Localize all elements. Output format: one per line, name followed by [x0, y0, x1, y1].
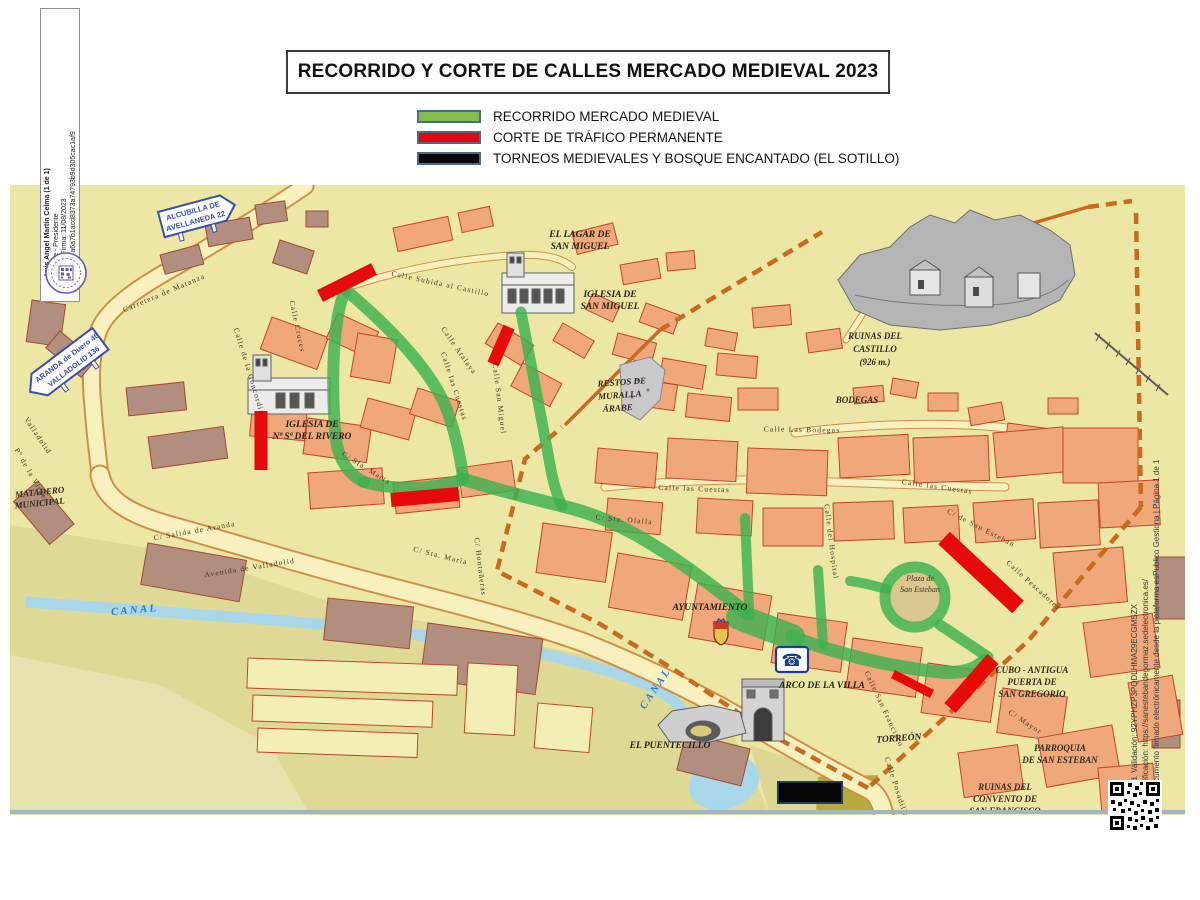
- cubo-label: PUERTA DE: [1007, 677, 1056, 687]
- cubo-label: CUBO - ANTIGUA: [996, 665, 1069, 675]
- closure-bar: [391, 494, 459, 500]
- parroquia-label: DE SAN ESTEBAN: [1021, 755, 1098, 765]
- svg-text:☎: ☎: [781, 651, 802, 671]
- platform-note: Documento firmado electrónicamente desde…: [1151, 402, 1162, 792]
- legend-label: TORNEOS MEDIEVALES Y BOSQUE ENCANTADO (E…: [493, 151, 899, 166]
- ruinas-castillo-label: (926 m.): [860, 357, 891, 367]
- validation-code: Cód. Validación: 92YPHZP3PQDLHMA29ECGMSZ…: [1129, 402, 1140, 792]
- closure-swatch: [417, 131, 481, 144]
- iglesia-san-miguel-label: SAN MIGUEL: [581, 302, 640, 312]
- lagar-label: SAN MIGUEL: [551, 242, 610, 252]
- ayuntamiento-label: AYUNTAMIENTO: [672, 603, 748, 613]
- puentecillo-label: EL PUENTECILLO: [629, 741, 711, 751]
- town-hall-crest-icon: [714, 619, 728, 645]
- map-title-box: RECORRIDO Y CORTE DE CALLES MERCADO MEDI…: [286, 50, 890, 94]
- legend-row-route: RECORRIDO MERCADO MEDIEVAL: [417, 106, 899, 126]
- tournament-swatch: [417, 152, 481, 165]
- iglesia-rivero-label: IGLESIA DE: [284, 420, 338, 430]
- arco-villa-label: ARCO DE LA VILLA: [778, 681, 865, 691]
- ruinas-convento-label: CONVENTO DE: [973, 794, 1037, 804]
- signature-hash: HASH: a6a7b1acd8373a74793b9d305cac1af9: [70, 12, 79, 276]
- bodegas-label: BODEGAS: [835, 395, 879, 405]
- map-bottom-edge: [10, 810, 1185, 814]
- iglesia-rivero-label: Nª Sª DEL RIVERO: [272, 432, 352, 442]
- document-page: RECORRIDO Y CORTE DE CALLES MERCADO MEDI…: [0, 0, 1200, 900]
- arco-villa-illustration: [742, 679, 784, 741]
- plaza-label: San Esteban: [900, 585, 940, 594]
- signer-role: Alcalde - Presidente: [53, 12, 62, 276]
- signature-text: Luis Angel Martín Celma (1 de 1) Alcalde…: [44, 12, 78, 276]
- ruinas-convento-label: RUINAS DEL: [977, 782, 1032, 792]
- tournament-area-marker: [778, 782, 842, 803]
- legend: RECORRIDO MERCADO MEDIEVAL CORTE DE TRÁF…: [417, 106, 899, 169]
- street-label: Calle Las Bodegas: [764, 424, 841, 434]
- legend-label: CORTE DE TRÁFICO PERMANENTE: [493, 130, 723, 145]
- qr-code: [1108, 780, 1162, 832]
- plaza-label: Plaza de: [905, 574, 934, 583]
- cubo-label: SAN GREGORIO: [998, 689, 1066, 699]
- legend-label: RECORRIDO MERCADO MEDIEVAL: [493, 109, 719, 124]
- map-title: RECORRIDO Y CORTE DE CALLES MERCADO MEDI…: [298, 61, 879, 83]
- ruinas-castillo-label: RUINAS DEL: [847, 331, 902, 341]
- official-stamp-icon: [44, 250, 88, 296]
- parroquia-label: PARROQUIA: [1034, 743, 1086, 753]
- lagar-label: EL LAGAR DE: [548, 230, 610, 240]
- validation-text: Cód. Validación: 92YPHZP3PQDLHMA29ECGMSZ…: [1129, 402, 1165, 792]
- phone-icon: ☎: [776, 647, 808, 672]
- legend-row-closure: CORTE DE TRÁFICO PERMANENTE: [417, 127, 899, 147]
- town-map: ALCUBILLA DE AVELLANEDA 22 ARANDA de Due…: [10, 185, 1185, 815]
- verification-url: Verificación: https://sanestebandegormaz…: [1140, 402, 1151, 792]
- ruinas-castillo-label: CASTILLO: [853, 344, 897, 354]
- legend-row-tournament: TORNEOS MEDIEVALES Y BOSQUE ENCANTADO (E…: [417, 148, 899, 168]
- iglesia-san-miguel-label: IGLESIA DE: [582, 290, 636, 300]
- route-swatch: [417, 110, 481, 123]
- signature-date: Fecha Firma: 11/08/2023: [61, 12, 70, 276]
- signer-name: Luis Angel Martín Celma (1 de 1): [44, 12, 53, 276]
